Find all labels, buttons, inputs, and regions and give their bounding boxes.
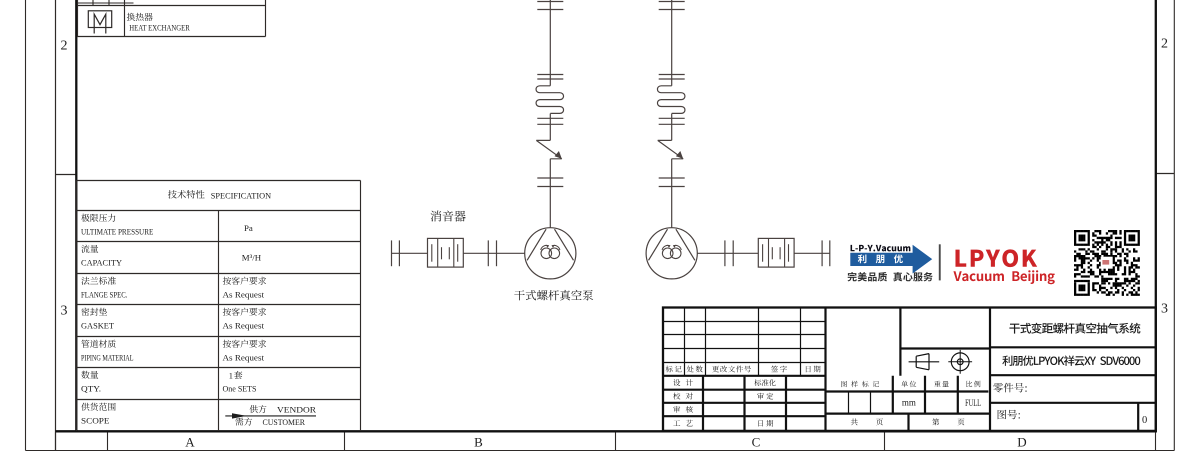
svg-text:D: D [1017, 435, 1026, 450]
svg-text:GASKET: GASKET [81, 321, 114, 330]
svg-text:2: 2 [61, 39, 68, 54]
svg-text:FULL: FULL [965, 399, 981, 409]
svg-text:PIPING MATERIAL: PIPING MATERIAL [81, 353, 134, 362]
svg-text:A: A [185, 435, 195, 450]
svg-text:2: 2 [1161, 37, 1168, 52]
svg-text:M³/H: M³/H [242, 253, 262, 263]
svg-text:One SETS: One SETS [223, 385, 257, 394]
svg-text:As Request: As Request [223, 321, 265, 330]
svg-text:SCOPE: SCOPE [81, 416, 110, 425]
svg-text:ULTIMATE PRESSURE: ULTIMATE PRESSURE [81, 227, 153, 236]
svg-text:HEAT EXCHANGER: HEAT EXCHANGER [129, 24, 190, 33]
svg-text:SPECIFICATION: SPECIFICATION [211, 190, 272, 200]
svg-text:mm: mm [902, 398, 916, 408]
svg-text:As Request: As Request [223, 290, 265, 299]
svg-text:1: 1 [229, 371, 233, 380]
svg-text:0: 0 [1142, 415, 1147, 426]
svg-text:CAPACITY: CAPACITY [81, 258, 122, 267]
svg-text:Pa: Pa [244, 223, 253, 233]
svg-text:As Request: As Request [223, 353, 265, 362]
svg-text:B: B [474, 435, 483, 450]
svg-text:QTY.: QTY. [81, 384, 101, 393]
svg-text:3: 3 [61, 304, 68, 319]
svg-text:3: 3 [1161, 302, 1168, 317]
svg-text:FLANGE SPEC.: FLANGE SPEC. [81, 290, 128, 299]
svg-text:CUSTOMER: CUSTOMER [263, 418, 306, 427]
svg-text:VENDOR: VENDOR [277, 406, 316, 415]
svg-text:C: C [752, 435, 761, 450]
